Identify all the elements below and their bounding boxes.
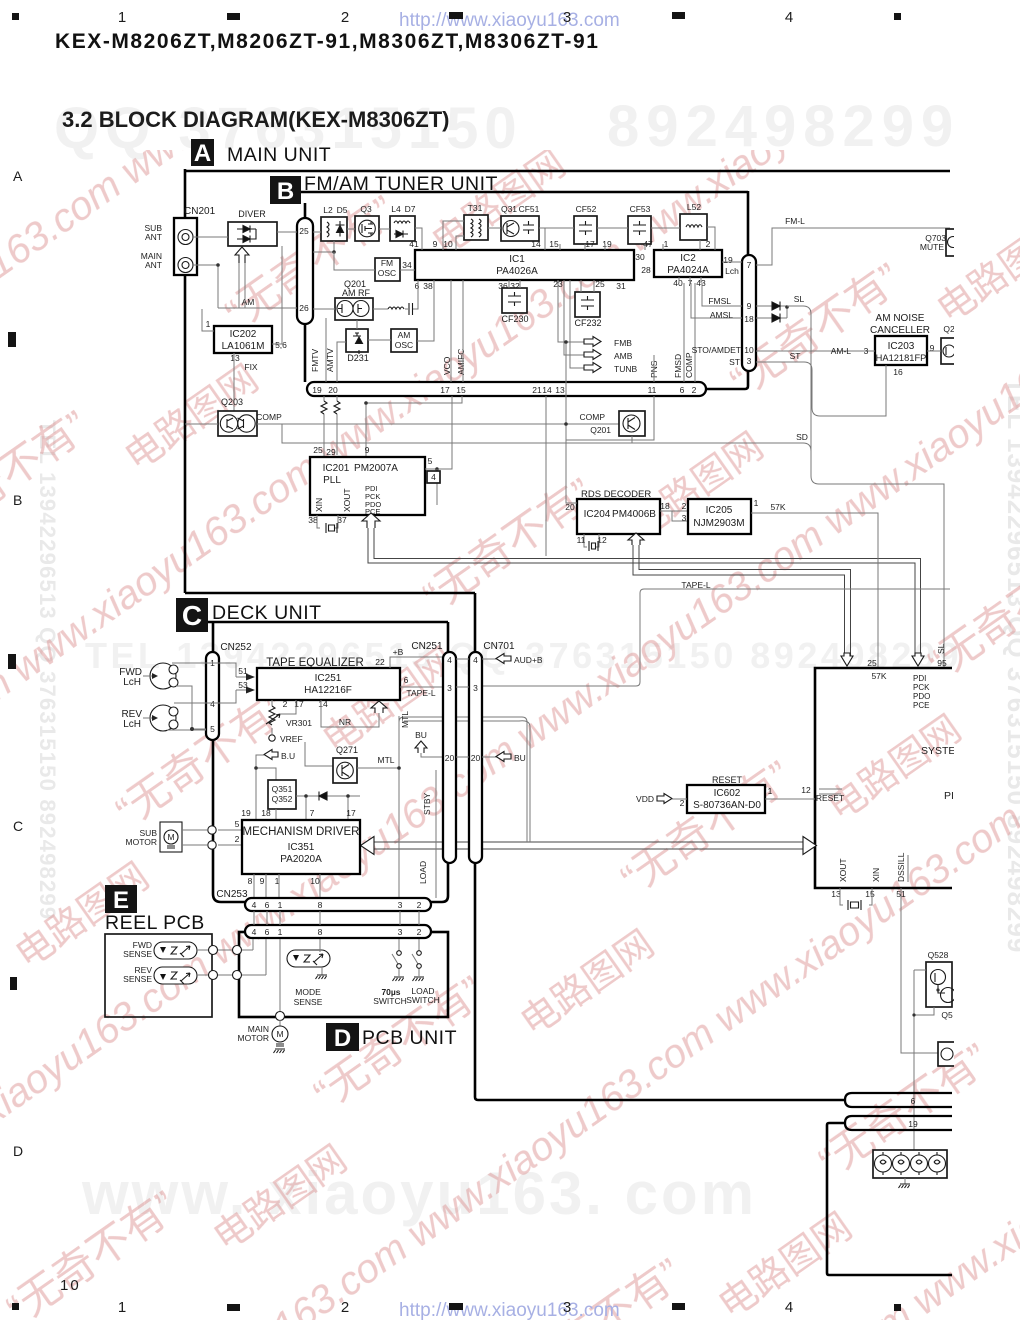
svg-text:SENSE: SENSE (123, 949, 152, 959)
svg-text:28: 28 (641, 265, 651, 275)
svg-text:http://www.xiaoyu163.com: http://www.xiaoyu163.com (399, 1300, 620, 1320)
svg-text:892498299: 892498299 (607, 94, 960, 159)
svg-text:4: 4 (431, 472, 436, 482)
svg-text:D5: D5 (337, 205, 348, 215)
svg-text:17: 17 (346, 808, 356, 818)
svg-text:SL: SL (794, 294, 805, 304)
svg-text:53: 53 (238, 680, 248, 690)
svg-text:MOTOR: MOTOR (238, 1033, 269, 1043)
svg-text:Q2: Q2 (943, 324, 955, 334)
svg-text:L52: L52 (687, 202, 701, 212)
svg-text:AM NOISE: AM NOISE (876, 313, 925, 324)
svg-text:2: 2 (341, 1299, 349, 1316)
svg-text:C: C (13, 818, 23, 834)
svg-text:38: 38 (423, 281, 433, 291)
svg-text:25: 25 (595, 279, 605, 289)
svg-text:14: 14 (318, 699, 328, 709)
svg-text:2: 2 (417, 927, 422, 937)
svg-text:XIN: XIN (314, 498, 324, 512)
svg-text:IC351: IC351 (288, 842, 315, 853)
svg-text:7: 7 (310, 808, 315, 818)
svg-text:IC205: IC205 (706, 505, 733, 516)
svg-text:2: 2 (682, 501, 687, 511)
svg-text:M: M (276, 1029, 283, 1039)
svg-text:IC201: IC201 (323, 463, 350, 474)
svg-text:AM RF: AM RF (342, 288, 371, 298)
svg-text:SWITCH: SWITCH (406, 995, 440, 1005)
svg-text:4: 4 (252, 900, 257, 910)
svg-text:31: 31 (616, 281, 626, 291)
svg-text:3: 3 (473, 683, 478, 693)
svg-text:18: 18 (261, 808, 271, 818)
svg-text:DECK UNIT: DECK UNIT (212, 602, 322, 624)
svg-text:PCB UNIT: PCB UNIT (362, 1027, 457, 1049)
svg-text:25: 25 (867, 658, 877, 668)
svg-text:2: 2 (692, 385, 697, 395)
svg-text:6: 6 (415, 281, 420, 291)
svg-text:XOUT: XOUT (838, 858, 848, 882)
svg-text:A: A (13, 168, 23, 184)
svg-text:FM-L: FM-L (785, 216, 805, 226)
svg-text:Lch: Lch (725, 266, 739, 276)
svg-text:26: 26 (299, 303, 309, 313)
svg-text:B.U: B.U (281, 751, 295, 761)
svg-text:10: 10 (744, 345, 754, 355)
svg-text:AM: AM (242, 297, 255, 307)
svg-text:10: 10 (443, 239, 453, 249)
svg-text:29: 29 (326, 447, 336, 457)
svg-text:6: 6 (265, 900, 270, 910)
svg-text:PDO: PDO (913, 692, 930, 701)
svg-text:IC202: IC202 (230, 329, 257, 340)
svg-text:34: 34 (402, 260, 412, 270)
svg-text:PM4006B: PM4006B (612, 509, 656, 520)
svg-text:MOTOR: MOTOR (126, 837, 157, 847)
svg-text:FM/AM TUNER UNIT: FM/AM TUNER UNIT (304, 173, 498, 195)
svg-text:STO/AMDET: STO/AMDET (692, 345, 741, 355)
svg-text:3: 3 (864, 346, 869, 356)
svg-text:3: 3 (398, 900, 403, 910)
svg-text:13: 13 (555, 385, 565, 395)
svg-text:PDI: PDI (913, 674, 926, 683)
svg-text:5: 5 (428, 456, 433, 466)
svg-text:C: C (182, 600, 202, 631)
svg-text:OSC: OSC (378, 268, 396, 278)
svg-text:95: 95 (937, 658, 947, 668)
svg-text:57K: 57K (871, 671, 886, 681)
svg-text:TAPE-L: TAPE-L (406, 688, 435, 698)
svg-text:Q5: Q5 (941, 1010, 953, 1020)
svg-text:3.2 BLOCK DIAGRAM(KEX-M8306ZT): 3.2 BLOCK DIAGRAM(KEX-M8306ZT) (62, 107, 449, 132)
svg-text:CN252: CN252 (220, 642, 252, 653)
svg-text:ST: ST (729, 357, 740, 367)
svg-text:PCK: PCK (913, 683, 930, 692)
svg-text:LA1061M: LA1061M (222, 341, 265, 352)
svg-text:10: 10 (310, 876, 320, 886)
svg-text:30: 30 (635, 252, 645, 262)
svg-text:MTL: MTL (400, 711, 410, 728)
svg-text:Q3: Q3 (360, 204, 372, 214)
svg-text:COMP: COMP (580, 412, 606, 422)
svg-text:4: 4 (447, 655, 452, 665)
svg-text:MECHANISM DRIVER: MECHANISM DRIVER (243, 826, 360, 838)
svg-text:ANT: ANT (145, 260, 162, 270)
svg-text:B: B (277, 178, 294, 205)
svg-text:5: 5 (235, 819, 240, 829)
svg-text:PA2020A: PA2020A (280, 854, 322, 865)
svg-text:T31: T31 (468, 203, 483, 213)
svg-text:CN251: CN251 (411, 641, 443, 652)
svg-text:MAIN UNIT: MAIN UNIT (227, 144, 331, 166)
svg-text:5: 5 (210, 724, 215, 734)
svg-text:9: 9 (365, 445, 370, 455)
svg-text:1: 1 (118, 1299, 126, 1316)
svg-text:AUD+B: AUD+B (514, 655, 543, 665)
svg-text:FMTV: FMTV (310, 349, 320, 372)
svg-text:15: 15 (549, 239, 559, 249)
svg-text:1: 1 (118, 9, 126, 26)
svg-text:8: 8 (318, 927, 323, 937)
svg-text:2: 2 (235, 834, 240, 844)
svg-text:XIN: XIN (871, 868, 881, 882)
svg-text:Q31: Q31 (501, 204, 517, 214)
svg-text:HA12181FP: HA12181FP (876, 353, 927, 363)
svg-text:COMP: COMP (684, 352, 694, 378)
svg-text:PA4026A: PA4026A (496, 266, 538, 277)
svg-text:VREF: VREF (280, 734, 303, 744)
svg-text:IC251: IC251 (315, 673, 342, 684)
svg-text:IC204: IC204 (584, 509, 611, 520)
svg-text:15: 15 (865, 889, 875, 899)
svg-text:http://www.xiaoyu163.com: http://www.xiaoyu163.com (399, 10, 620, 31)
svg-text:1: 1 (754, 498, 759, 508)
svg-text:Q271: Q271 (336, 745, 358, 755)
svg-text:1: 1 (664, 239, 669, 249)
svg-text:REEL PCB: REEL PCB (105, 912, 205, 934)
svg-text:AM-L: AM-L (831, 346, 852, 356)
svg-text:D231: D231 (347, 353, 369, 363)
svg-text:AMB: AMB (614, 351, 633, 361)
svg-text:L2: L2 (323, 205, 333, 215)
svg-text:14: 14 (542, 385, 552, 395)
svg-text:IC602: IC602 (714, 788, 741, 799)
svg-text:Q528: Q528 (928, 950, 949, 960)
svg-text:12: 12 (801, 785, 811, 795)
svg-text:18: 18 (744, 314, 754, 324)
svg-text:SENSE: SENSE (123, 974, 152, 984)
svg-text:3: 3 (563, 1299, 571, 1316)
svg-text:BU: BU (514, 753, 526, 763)
svg-text:19: 19 (908, 1119, 918, 1129)
svg-text:3: 3 (398, 927, 403, 937)
svg-text:AMSL: AMSL (710, 310, 733, 320)
svg-text:COMP: COMP (256, 412, 282, 422)
svg-text:LcH: LcH (123, 719, 141, 730)
svg-text:HA12216F: HA12216F (304, 685, 352, 696)
svg-text:51: 51 (238, 666, 248, 676)
svg-text:9: 9 (433, 239, 438, 249)
svg-text:3: 3 (747, 356, 752, 366)
svg-text:XOUT: XOUT (342, 488, 352, 512)
svg-text:DSSILL: DSSILL (896, 852, 906, 882)
svg-text:4: 4 (210, 699, 215, 709)
svg-text:FMB: FMB (614, 338, 632, 348)
svg-text:ST: ST (790, 351, 801, 361)
svg-text:M: M (167, 832, 174, 842)
svg-text:1: 1 (278, 900, 283, 910)
svg-text:KEX-M8206ZT,M8206ZT-91,M8306ZT: KEX-M8206ZT,M8206ZT-91,M8306ZT,M8306ZT-9… (55, 30, 599, 53)
svg-text:40: 40 (673, 278, 683, 288)
svg-text:8: 8 (318, 900, 323, 910)
svg-text:FIX: FIX (244, 362, 258, 372)
svg-text:21: 21 (532, 385, 542, 395)
svg-text:AM: AM (398, 330, 411, 340)
svg-text:57K: 57K (770, 502, 785, 512)
svg-text:7: 7 (747, 260, 752, 270)
svg-text:37: 37 (337, 515, 347, 525)
svg-text:FMSD: FMSD (673, 354, 683, 378)
svg-text:18: 18 (660, 501, 670, 511)
svg-text:6: 6 (680, 385, 685, 395)
svg-text:MODE: MODE (295, 987, 321, 997)
svg-text:VR301: VR301 (286, 718, 312, 728)
svg-text:FMSL: FMSL (708, 296, 731, 306)
svg-text:OSC: OSC (395, 340, 413, 350)
svg-text:PLL: PLL (323, 475, 341, 486)
svg-text:9: 9 (747, 301, 752, 311)
svg-text:9: 9 (260, 876, 265, 886)
svg-text:3: 3 (447, 683, 452, 693)
svg-text:11: 11 (648, 385, 657, 395)
svg-text:IC203: IC203 (888, 341, 915, 352)
svg-text:19: 19 (602, 239, 612, 249)
svg-text:RESET: RESET (712, 775, 743, 785)
svg-text:2: 2 (417, 900, 422, 910)
svg-text:D7: D7 (405, 204, 416, 214)
svg-text:TUNB: TUNB (614, 364, 637, 374)
svg-text:6: 6 (404, 675, 409, 685)
svg-text:A: A (194, 140, 211, 167)
svg-text:CF53: CF53 (630, 204, 651, 214)
svg-text:D: D (13, 1143, 23, 1159)
svg-text:CN201: CN201 (184, 206, 216, 217)
svg-text:NR: NR (339, 717, 351, 727)
svg-text:15: 15 (456, 385, 466, 395)
svg-text:L4: L4 (391, 204, 401, 214)
svg-text:IC2: IC2 (680, 253, 696, 264)
svg-text:8: 8 (248, 876, 253, 886)
svg-text:VDD: VDD (636, 794, 654, 804)
svg-text:TAPE-L: TAPE-L (681, 580, 710, 590)
svg-text:3: 3 (682, 513, 687, 523)
svg-text:CF232: CF232 (574, 318, 601, 328)
svg-text:1: 1 (278, 927, 283, 937)
svg-text:B: B (13, 492, 22, 508)
svg-text:4: 4 (785, 9, 793, 26)
svg-text:AMIFC: AMIFC (456, 349, 466, 375)
svg-text:17: 17 (585, 239, 595, 249)
svg-text:PI: PI (944, 790, 954, 802)
svg-text:Q352: Q352 (272, 794, 293, 804)
svg-text:41: 41 (409, 239, 419, 249)
svg-text:CANCELLER: CANCELLER (870, 325, 930, 336)
svg-text:Q351: Q351 (272, 784, 293, 794)
svg-text:25: 25 (313, 445, 323, 455)
svg-text:LOAD: LOAD (418, 861, 428, 884)
svg-text:DIVER: DIVER (238, 209, 266, 219)
svg-text:20: 20 (471, 753, 481, 763)
svg-text:4: 4 (252, 927, 257, 937)
svg-text:MUTE: MUTE (920, 242, 944, 252)
svg-text:STBY: STBY (422, 792, 432, 815)
svg-text:S-80736AN-D0: S-80736AN-D0 (693, 800, 761, 811)
svg-text:14: 14 (531, 239, 541, 249)
svg-text:19: 19 (241, 808, 251, 818)
svg-text:22: 22 (375, 657, 385, 667)
svg-text:13: 13 (230, 353, 240, 363)
svg-text:E: E (113, 887, 129, 914)
svg-text:D: D (334, 1025, 351, 1052)
svg-text:1: 1 (206, 319, 211, 329)
svg-text:4: 4 (785, 1299, 793, 1316)
svg-text:PCE: PCE (913, 701, 929, 710)
svg-text:IC1: IC1 (509, 254, 525, 265)
svg-text:19: 19 (723, 255, 733, 265)
svg-text:PA4024A: PA4024A (667, 265, 709, 276)
svg-text:+B: +B (393, 647, 404, 657)
svg-text:17: 17 (440, 385, 450, 395)
svg-text:2: 2 (706, 239, 711, 249)
svg-text:LcH: LcH (123, 677, 141, 688)
svg-text:10: 10 (60, 1277, 81, 1294)
svg-text:SENSE: SENSE (294, 997, 323, 1007)
svg-text:Q203: Q203 (221, 397, 243, 407)
svg-text:6: 6 (911, 1096, 916, 1106)
svg-text:BU: BU (415, 730, 427, 740)
svg-text:Q201: Q201 (590, 425, 611, 435)
svg-text:25: 25 (299, 226, 309, 236)
svg-text:4: 4 (473, 655, 478, 665)
svg-text:20: 20 (445, 753, 455, 763)
svg-text:SWITCH: SWITCH (373, 996, 407, 1006)
svg-text:16: 16 (893, 367, 903, 377)
svg-text:6: 6 (265, 927, 270, 937)
svg-text:NJM2903M: NJM2903M (693, 518, 744, 529)
svg-text:CF52: CF52 (576, 204, 597, 214)
svg-text:FM: FM (381, 258, 393, 268)
svg-text:2: 2 (341, 9, 349, 26)
svg-text:ANT: ANT (145, 232, 162, 242)
svg-text:CF51: CF51 (519, 204, 540, 214)
svg-text:SD: SD (796, 432, 808, 442)
svg-text:5,6: 5,6 (275, 340, 287, 350)
svg-text:19: 19 (312, 385, 322, 395)
svg-text:1: 1 (768, 786, 773, 796)
svg-text:20: 20 (328, 385, 338, 395)
svg-text:2: 2 (283, 699, 288, 709)
svg-text:SL: SL (936, 643, 946, 654)
svg-text:3: 3 (563, 9, 571, 26)
svg-text:CN701: CN701 (483, 641, 515, 652)
svg-text:CF230: CF230 (501, 314, 528, 324)
svg-text:MTL: MTL (378, 755, 395, 765)
svg-text:CN253: CN253 (216, 889, 248, 900)
svg-text:PM2007A: PM2007A (354, 463, 398, 474)
